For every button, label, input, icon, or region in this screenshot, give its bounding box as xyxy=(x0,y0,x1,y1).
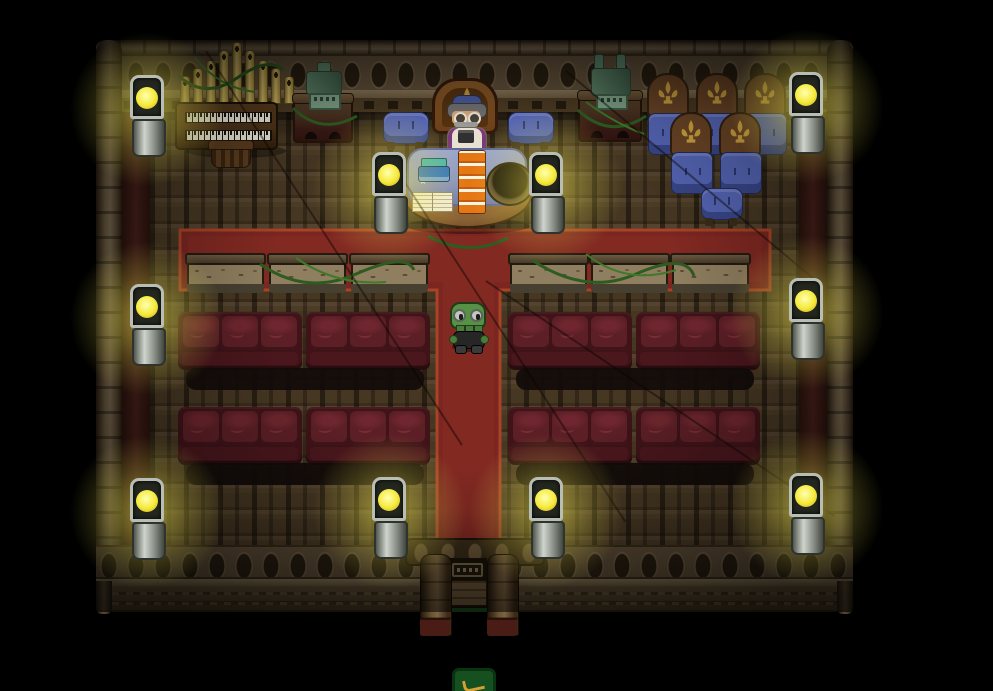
lamp-orb xyxy=(136,87,158,109)
pew-seat xyxy=(310,447,426,460)
pew-shadow xyxy=(186,368,424,390)
player-hand xyxy=(480,335,489,344)
lamp-orb xyxy=(795,485,817,507)
bench-vines-right xyxy=(526,250,696,294)
lamp-orb xyxy=(795,84,817,106)
player-foot xyxy=(455,345,467,354)
player-character[interactable] xyxy=(448,298,488,352)
lamp-glass xyxy=(789,473,823,517)
lamp-glass xyxy=(789,72,823,116)
pew-seat xyxy=(512,447,628,460)
right-corner-foot xyxy=(837,581,853,614)
lamp-base xyxy=(132,119,166,157)
organ-black-keys xyxy=(186,113,271,117)
lamp-base xyxy=(531,196,565,234)
stone-bench[interactable] xyxy=(185,253,266,293)
npc-book xyxy=(458,130,474,143)
pew-squiggle xyxy=(397,425,411,433)
wall-lamp xyxy=(787,278,825,358)
red-pew[interactable] xyxy=(178,312,302,370)
chair-mark xyxy=(398,121,414,129)
left-corner-foot xyxy=(96,581,112,614)
pew-seat xyxy=(182,352,298,365)
red-pew[interactable] xyxy=(178,407,302,465)
door-sign xyxy=(452,563,483,577)
pew-squiggle xyxy=(397,330,411,338)
lamp-glass xyxy=(372,152,406,196)
right-frame-column xyxy=(827,40,853,586)
fleur-icon xyxy=(678,118,704,148)
lamp-orb xyxy=(378,164,400,186)
door-threshold xyxy=(450,608,487,612)
pew-squiggle xyxy=(727,425,741,433)
lamp-orb xyxy=(136,296,158,318)
pew-squiggle xyxy=(318,425,332,433)
bench-vines-left xyxy=(256,252,416,294)
red-pew[interactable] xyxy=(306,312,430,370)
pew-seat xyxy=(182,447,298,460)
pew-squiggle xyxy=(599,425,613,433)
red-pew[interactable] xyxy=(508,312,632,370)
pew-squiggle xyxy=(648,425,662,433)
organ-keyboard xyxy=(185,112,272,123)
blue-chair[interactable] xyxy=(701,188,745,230)
red-pew[interactable] xyxy=(636,312,760,370)
pew-squiggle xyxy=(190,330,204,338)
entrance-door[interactable] xyxy=(450,558,487,612)
pew-squiggle xyxy=(599,330,613,338)
pew-squiggle xyxy=(318,330,332,338)
pew-shadow xyxy=(516,368,754,390)
stool-slats xyxy=(211,149,251,168)
statue-vine-left xyxy=(291,98,359,138)
pew-squiggle xyxy=(269,330,283,338)
green-signpost[interactable] xyxy=(452,668,496,691)
wall-lamp xyxy=(128,284,166,364)
chair-foot xyxy=(729,218,737,226)
lamp-base xyxy=(132,328,166,366)
lamp-base xyxy=(374,196,408,234)
fleur-icon xyxy=(655,79,681,109)
fleur-icon xyxy=(727,118,753,148)
wall-lamp xyxy=(787,473,825,553)
organ-stool[interactable] xyxy=(208,140,252,168)
player-hand xyxy=(449,335,458,344)
lamp-glass xyxy=(789,278,823,322)
lamp-base xyxy=(132,522,166,560)
standing-lamp xyxy=(527,477,565,557)
orange-book-stack[interactable] xyxy=(458,150,486,214)
lamp-orb xyxy=(136,490,158,512)
pew-squiggle xyxy=(727,330,741,338)
lamp-base xyxy=(374,521,408,559)
ornate-chair[interactable] xyxy=(717,112,763,200)
lamp-orb xyxy=(795,290,817,312)
lamp-glass xyxy=(372,477,406,521)
lamp-glass xyxy=(529,477,563,521)
chapel-building: ★ ★ ★ ☽ xyxy=(96,40,853,612)
pew-squiggle xyxy=(648,330,662,338)
pew-squiggle xyxy=(190,425,204,433)
blue-book[interactable] xyxy=(418,158,448,182)
bench-rail xyxy=(185,253,266,265)
pew-squiggle xyxy=(358,330,372,338)
red-pew[interactable] xyxy=(306,407,430,465)
chair-foot xyxy=(705,218,713,226)
pew-seat xyxy=(640,352,756,365)
lamp-glass xyxy=(529,152,563,196)
chair-mark xyxy=(734,168,750,175)
door-planks xyxy=(450,580,487,606)
pew-row xyxy=(178,312,430,394)
wall-lamp xyxy=(128,75,166,155)
lamp-orb xyxy=(378,489,400,511)
statue-body xyxy=(306,71,342,95)
wall-lamp xyxy=(128,478,166,558)
left-frame-column xyxy=(96,40,122,586)
pillar-base xyxy=(420,618,450,636)
player-foot xyxy=(471,345,483,354)
bench-body xyxy=(187,265,264,284)
statue-vine-right xyxy=(576,96,648,140)
ornate-chair[interactable] xyxy=(668,112,714,200)
lamp-orb xyxy=(535,164,557,186)
lamp-base xyxy=(531,521,565,559)
game-viewport: ★ ★ ★ ☽ xyxy=(0,0,993,691)
fleur-icon xyxy=(752,79,778,109)
pew-seat xyxy=(640,447,756,460)
lamp-glass xyxy=(130,284,164,328)
player-goggle-eye xyxy=(470,309,483,322)
organ-vines xyxy=(175,48,285,106)
pew-squiggle xyxy=(230,330,244,338)
statue-body xyxy=(591,68,631,96)
lamp-base xyxy=(791,322,825,360)
red-pew[interactable] xyxy=(636,407,760,465)
player-pupil xyxy=(459,314,463,320)
pew-squiggle xyxy=(358,425,372,433)
pew-squiggle xyxy=(520,425,534,433)
fleur-icon xyxy=(704,79,730,109)
chair-mark xyxy=(523,121,539,129)
book-page xyxy=(432,192,453,212)
lamp-glass xyxy=(130,478,164,522)
lamp-orb xyxy=(535,489,557,511)
standing-lamp xyxy=(370,477,408,557)
bench-foot xyxy=(187,284,264,293)
wall-lamp xyxy=(787,72,825,152)
door-sign-runes xyxy=(457,568,478,572)
lamp-base xyxy=(791,116,825,154)
sign-scribble xyxy=(462,677,485,691)
altar-table[interactable]: ★ ★ ★ ☽ xyxy=(402,148,532,230)
lamp-base xyxy=(791,517,825,555)
standing-lamp xyxy=(370,152,408,232)
book-bottom xyxy=(418,166,450,182)
pew-squiggle xyxy=(269,425,283,433)
player-pupil xyxy=(476,314,480,320)
porch-pillar xyxy=(487,554,519,636)
porch-pillar xyxy=(420,554,452,636)
standing-lamp xyxy=(527,152,565,232)
lamp-glass xyxy=(130,75,164,119)
pew-squiggle xyxy=(520,330,534,338)
chair-foot xyxy=(387,142,395,150)
pew-squiggle xyxy=(230,425,244,433)
priest-npc[interactable] xyxy=(445,95,487,153)
pew-squiggle xyxy=(688,330,702,338)
chair-foot xyxy=(540,142,548,150)
pillar-base xyxy=(487,618,517,636)
player-goggle-eye xyxy=(453,309,466,322)
